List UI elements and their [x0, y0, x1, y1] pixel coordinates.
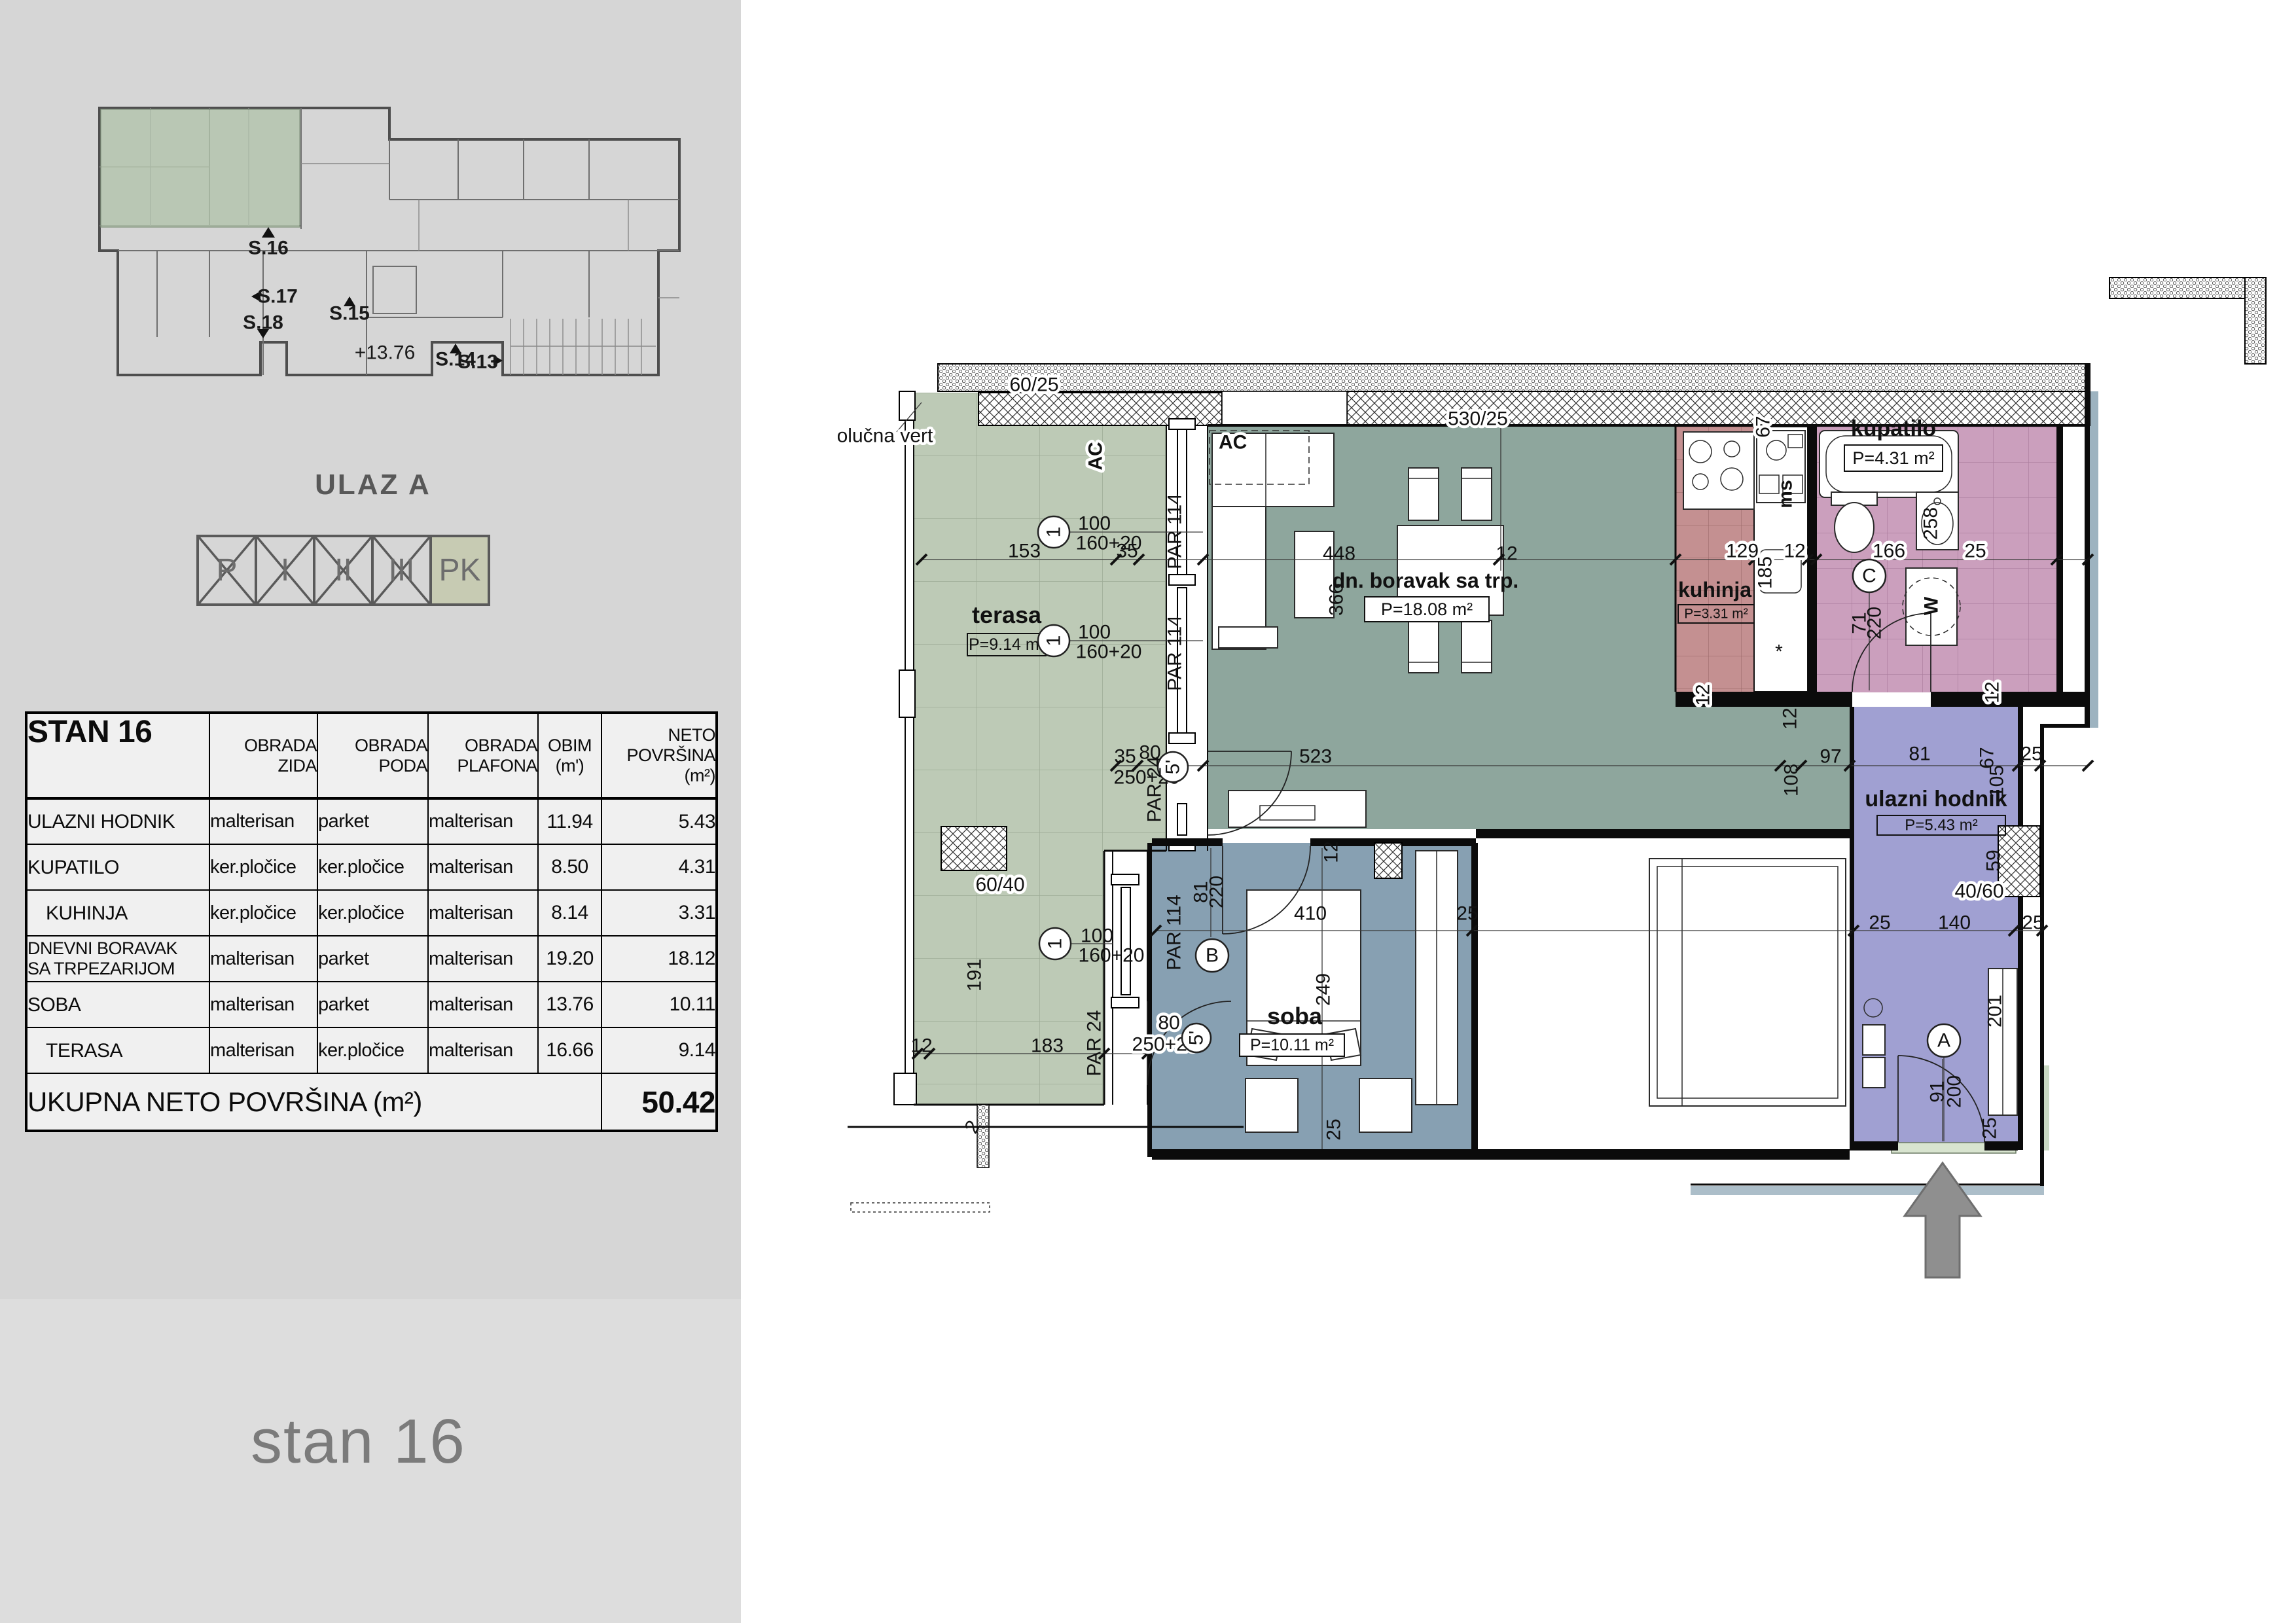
entrance-title: ULAZ A	[262, 469, 484, 501]
mini-plan-labels: S.16S.17S.18S.15S.14S.13+13.76	[243, 238, 498, 373]
dim-label: *	[1775, 641, 1783, 663]
stairs	[511, 319, 656, 375]
mullion	[1169, 419, 1195, 429]
dim-label: S.16	[248, 238, 289, 259]
tv-sideboard	[1229, 791, 1366, 827]
dim-label: 12	[1496, 543, 1517, 565]
dim-label: S.13	[457, 351, 498, 373]
floor-box-I: I	[255, 535, 315, 606]
dim-label: 35	[1116, 541, 1138, 562]
stove	[1683, 432, 1754, 509]
drawing-sheet: S.16S.17S.18S.15S.14S.13+13.76 ULAZ A PI…	[0, 0, 2296, 1623]
dim-label: C	[1862, 565, 1876, 587]
dim-label: 60/40	[975, 874, 1024, 896]
room-label-kuhinja: kuhinja P=3.31 m²	[1678, 578, 1754, 623]
col-obrada-poda: OBRADA PODA	[317, 713, 428, 798]
window	[1121, 887, 1130, 995]
col-neto-povrsina: NETO POVRŠINA (m²)	[601, 713, 717, 798]
floor-label: P	[216, 552, 237, 588]
dim-label: 1	[1043, 635, 1065, 647]
dim-label: 67	[1753, 416, 1774, 437]
dim-label: 183	[1031, 1035, 1064, 1057]
insulation-band-top	[938, 364, 2090, 391]
mullion	[1169, 575, 1195, 585]
mullion	[1111, 997, 1139, 1008]
neighbor-wall-h	[2109, 277, 2265, 298]
nightstand	[1359, 1079, 1412, 1132]
svg-text:kuhinja: kuhinja	[1678, 578, 1751, 601]
table-row: KUHINJA ker.pločice ker.pločice malteris…	[26, 890, 717, 936]
dim-label: 153	[1008, 541, 1041, 562]
dim-label: 160+20	[1079, 945, 1145, 967]
dim-label: 25	[2020, 743, 2042, 765]
hall-bottom-wall	[1850, 1141, 1898, 1150]
chair	[1408, 468, 1439, 520]
dim-label: 12	[1693, 684, 1714, 705]
area-table: STAN 16 OBRADA ZIDA OBRADA PODA OBRADA P…	[25, 711, 718, 1132]
dim-label: A	[1937, 1030, 1950, 1052]
dim-label: AC	[1219, 432, 1247, 454]
dim-label: 200	[1944, 1075, 1965, 1108]
terasa-left-wall	[905, 393, 914, 1105]
floor-label: PK	[439, 552, 480, 588]
chair	[1462, 620, 1492, 673]
svg-text:P=4.31 m²: P=4.31 m²	[1852, 448, 1934, 468]
col-obim: OBIM (m')	[538, 713, 601, 798]
col-obrada-zida: OBRADA ZIDA	[209, 713, 317, 798]
dim-label: PAR 24	[1084, 1010, 1105, 1076]
floor-label: I	[281, 552, 289, 588]
dim-label: 12	[1321, 841, 1342, 863]
dotted-band	[851, 1203, 990, 1212]
living-bottom-wall	[1476, 829, 1850, 838]
dim-label: 108	[1781, 764, 1803, 796]
col-obrada-plafona: OBRADA PLAFONA	[428, 713, 538, 798]
dim-label: ms	[1775, 480, 1797, 508]
dim-label: 12	[1784, 541, 1805, 562]
soba-right-wall	[1471, 843, 1478, 1157]
dim-label: 25	[2022, 912, 2043, 934]
dim-label: 25	[1964, 541, 1986, 562]
dim-label: 191	[964, 959, 986, 991]
elevator	[373, 266, 416, 313]
floor-label: II	[334, 552, 352, 588]
floor-label: III	[388, 552, 414, 588]
dim-label: PAR 24	[1144, 756, 1166, 822]
dim-label: 448	[1323, 543, 1355, 565]
entrance-arrow	[1905, 1163, 1981, 1277]
dim-label: S.15	[329, 303, 370, 325]
table-header-row: STAN 16 OBRADA ZIDA OBRADA PODA OBRADA P…	[26, 713, 717, 798]
outer-right-wall	[2085, 364, 2090, 728]
dim-label: 366	[1326, 583, 1348, 616]
table-row: TERASA malterisan ker.pločice malterisan…	[26, 1027, 717, 1073]
dim-label: 40/60	[1954, 881, 2003, 902]
dim-label: 100	[1078, 622, 1111, 643]
dim-label: 12	[910, 1035, 932, 1057]
sofa-bench	[1219, 627, 1278, 648]
dim-label: 410	[1294, 903, 1327, 925]
dim-label: B	[1206, 945, 1219, 967]
column	[941, 827, 1007, 870]
dim-label: 100	[1078, 513, 1111, 535]
dim-label: PAR 114	[1164, 895, 1185, 971]
svg-text:P=9.14 m²: P=9.14 m²	[969, 635, 1045, 654]
hall-left-wall	[1850, 707, 1854, 1150]
closet	[1649, 859, 1846, 1106]
mullion	[1169, 733, 1195, 743]
nightstand	[1246, 1079, 1298, 1132]
dim-label: 220	[1206, 876, 1228, 908]
mullion	[1111, 874, 1139, 885]
dim-label: 530/25	[1448, 408, 1508, 430]
sheet-title: stan 16	[251, 1406, 466, 1478]
dim-label: 220	[1864, 607, 1886, 639]
floor-box-II: II	[313, 535, 374, 606]
dim-label: 97	[1820, 746, 1841, 768]
dim-label: 166	[1873, 541, 1905, 562]
marker-s16-triangle	[262, 227, 275, 238]
dim-label: 60/25	[1009, 374, 1058, 396]
soba-top-wall	[1152, 838, 1223, 846]
dim-label: 160+20	[1076, 641, 1142, 663]
neighbor-sliver-green	[2044, 1065, 2049, 1150]
table-row: SOBA malterisan parket malterisan 13.76 …	[26, 982, 717, 1027]
dim-label: +13.76	[355, 342, 416, 364]
svg-text:soba: soba	[1267, 1003, 1323, 1029]
sidebar: S.16S.17S.18S.15S.14S.13+13.76 ULAZ A PI…	[0, 0, 741, 1623]
floor-box-PK: PK	[429, 535, 490, 606]
dim-label: PAR 114	[1164, 615, 1186, 691]
soba-left-wall	[1147, 843, 1152, 1157]
dim-label: 25	[1979, 1117, 2001, 1139]
dim-label: 201	[1984, 995, 2006, 1027]
apartment-highlight	[101, 109, 300, 227]
step-wall	[2040, 724, 2090, 728]
dim-label: PAR 114	[1164, 493, 1186, 569]
wc-bowl	[1835, 503, 1874, 552]
dim-label: 523	[1299, 746, 1332, 768]
dim-label: 258	[1920, 507, 1942, 540]
dim-label: 5'	[1186, 1031, 1208, 1045]
dim-label: 1	[1045, 938, 1066, 950]
mini-floor-plan: S.16S.17S.18S.15S.14S.13+13.76	[92, 101, 687, 383]
column	[1374, 843, 1402, 878]
neighbor-wall-v	[2245, 277, 2266, 364]
dim-label: 105	[1986, 765, 2008, 798]
dim-label: 25	[1456, 903, 1478, 925]
dim-label: 249	[1313, 973, 1335, 1006]
table-title: STAN 16	[26, 713, 209, 798]
neighbor-strip-bottom	[1691, 1186, 2044, 1195]
top-wall-gap	[1222, 391, 1347, 425]
svg-text:P=18.08 m²: P=18.08 m²	[1381, 599, 1473, 619]
svg-text:P=5.43 m²: P=5.43 m²	[1905, 817, 1977, 834]
dim-label: 80	[1158, 1012, 1179, 1034]
outer-right-wall-low	[2040, 728, 2044, 1186]
neighbor-sliver-top	[2090, 391, 2098, 728]
floor-selector: PIIIIIIPK	[196, 535, 490, 606]
floor-box-III: III	[371, 535, 432, 606]
post	[894, 1073, 916, 1105]
bottom-wall	[1152, 1149, 1850, 1160]
svg-text:dn. boravak sa trp.: dn. boravak sa trp.	[1333, 569, 1519, 592]
chair	[1462, 468, 1492, 520]
dim-label: 81	[1909, 743, 1930, 765]
hall-cabinet	[1863, 1025, 1885, 1055]
post	[899, 670, 915, 717]
column	[1998, 826, 2040, 897]
svg-text:kupatilo: kupatilo	[1851, 416, 1936, 441]
hall-bottom-wall	[1984, 1141, 2018, 1150]
dim-label: 1	[1043, 527, 1065, 538]
post	[899, 391, 915, 420]
wall-under-bath	[1931, 692, 2090, 707]
svg-text:P=10.11 m²: P=10.11 m²	[1250, 1036, 1334, 1054]
dim-label: 59	[1983, 849, 2005, 871]
table-row: ULAZNI HODNIK malterisan parket malteris…	[26, 798, 717, 844]
table-row: DNEVNI BORAVAK SA TRPEZARIJOM malterisan…	[26, 936, 717, 982]
table-row: KUPATILO ker.pločice ker.pločice malteri…	[26, 844, 717, 890]
table-total-row: UKUPNA NETO POVRŠINA (m²) 50.42	[26, 1073, 717, 1131]
dim-label: 12	[1982, 681, 2003, 703]
dim-label: 25	[1323, 1118, 1345, 1140]
main-floor-plan: terasa P=9.14 m² dn. boravak sa trp. P=1…	[838, 262, 2296, 1296]
hall-cabinet	[1863, 1058, 1885, 1088]
dim-label: 35	[1114, 746, 1136, 768]
dim-label: S.17	[257, 286, 298, 308]
dim-label: S.18	[243, 312, 283, 334]
dim-label: 140	[1938, 912, 1971, 934]
floor-box-P: P	[196, 535, 257, 606]
dim-label: olučna vert	[838, 425, 933, 447]
window	[1177, 804, 1187, 835]
chair	[1408, 620, 1439, 673]
dim-label: 12	[1780, 707, 1801, 729]
dim-label: 100	[1081, 925, 1113, 947]
dim-label: 185	[1755, 556, 1776, 589]
svg-text:P=3.31 m²: P=3.31 m²	[1684, 607, 1748, 622]
dim-label: W	[1921, 596, 1943, 615]
svg-text:terasa: terasa	[972, 601, 1042, 628]
dim-label: AC	[1085, 442, 1107, 470]
dim-label: 25	[1869, 912, 1890, 934]
